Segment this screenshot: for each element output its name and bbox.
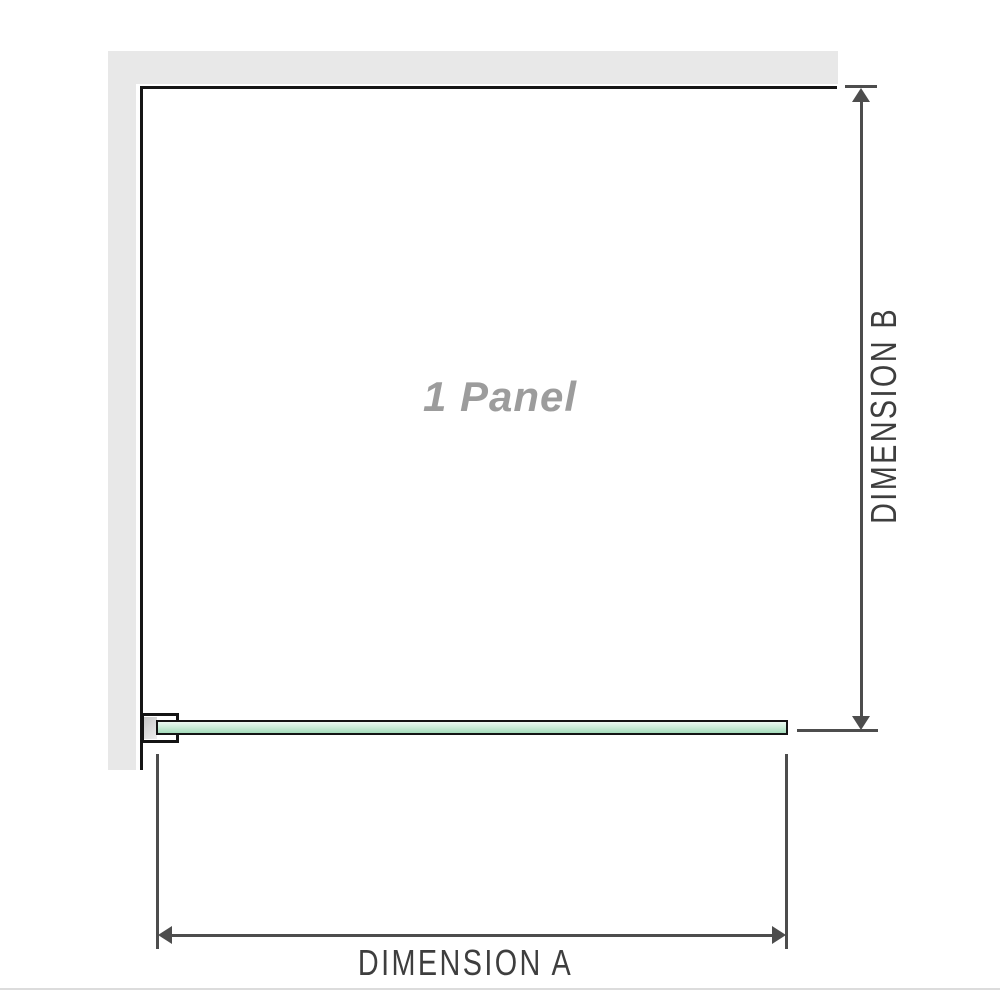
- panel-dimension-diagram: 1 Panel DIMENSION B DIMENSION A: [0, 0, 1000, 1000]
- dimension-a-left-extension-line: [156, 754, 159, 949]
- panel-count-label: 1 Panel: [300, 372, 700, 422]
- dimension-a-right-extension-line: [785, 754, 788, 949]
- dimension-a-line: [169, 934, 775, 937]
- wall-left-bar: [108, 51, 136, 770]
- bottom-divider-line: [0, 988, 1000, 990]
- dimension-a-label-text: DIMENSION A: [358, 942, 573, 984]
- dimension-b-label-text: DIMENSION B: [863, 307, 905, 524]
- dimension-b-label: DIMENSION B: [862, 215, 906, 615]
- panel-frame-left-line: [140, 86, 143, 770]
- arrow-down-icon: [852, 716, 870, 730]
- arrow-right-icon: [772, 926, 786, 944]
- wall-top-bar: [108, 51, 838, 84]
- panel-frame-top-line: [140, 86, 837, 89]
- dimension-b-bottom-tick: [797, 729, 878, 732]
- dimension-a-label: DIMENSION A: [266, 941, 666, 985]
- glass-panel-bar: [156, 720, 788, 735]
